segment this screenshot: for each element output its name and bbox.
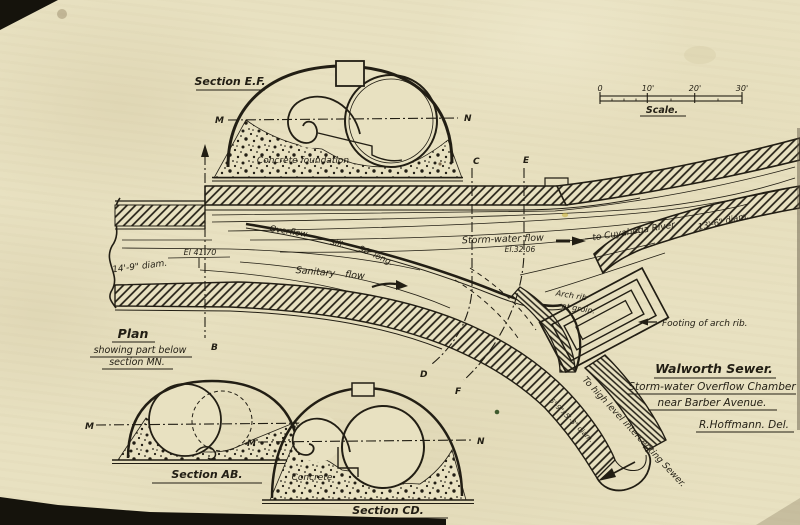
left-diameter: 14'-9" diam. (112, 259, 168, 276)
arch-rib-label-1: Arch rib (554, 288, 587, 302)
dark-speck (438, 162, 441, 165)
ab-marker-m: M (85, 422, 94, 432)
section-ef-drawing: M N Concrete foundation Section E.F. (194, 61, 472, 181)
section-cd-title: Section CD. (352, 504, 424, 517)
cd-concrete-label: Concrete (292, 473, 333, 483)
sill-length-label: 90' long. (357, 244, 395, 268)
scanned-drawing-page: Overflow sill. 90' long. Sanitary flow S… (0, 0, 800, 525)
plan-title: Plan (118, 326, 149, 341)
section-ab-title: Section AB. (171, 468, 242, 481)
storm-elevation: El.32.06 (505, 245, 536, 254)
ef-foundation-label: Concrete foundation (257, 156, 349, 166)
letter-d: D (420, 370, 428, 380)
cd-marker-m: M (247, 439, 256, 449)
scale-bar: 0 10' 20' 30' Scale. (597, 84, 748, 116)
cd-keystone (352, 383, 374, 396)
cd-marker-n: N (477, 437, 485, 447)
letter-e: E (523, 156, 530, 166)
engineering-drawing: Overflow sill. 90' long. Sanitary flow S… (0, 0, 800, 525)
section-ef-title: Section E.F. (194, 75, 265, 88)
footing-label: Footing of arch rib. (662, 319, 748, 329)
title-line-1: Walworth Sewer. (655, 361, 773, 376)
left-elevation: El 41.70 (184, 248, 217, 257)
paper-stain (684, 46, 716, 64)
sanitary-flow-label: Sanitary flow (295, 265, 365, 282)
scale-tick-30: 30' (736, 84, 748, 93)
section-a-arrow (201, 144, 209, 157)
plan-subtitle-1: showing part below (94, 345, 187, 356)
letter-c: C (473, 157, 480, 167)
plan-subtitle-2: section MN. (109, 357, 165, 368)
green-speck (495, 410, 500, 415)
scale-label: Scale. (646, 105, 678, 116)
ef-keystone (336, 61, 364, 86)
top-wall (205, 186, 567, 205)
letter-f: F (455, 387, 462, 397)
title-line-3: near Barber Avenue. (658, 397, 767, 409)
overflow-label: Overflow (269, 224, 308, 240)
title-line-2: Storm-water Overflow Chamber (628, 381, 796, 393)
scale-tick-0: 0 (597, 84, 602, 93)
ef-marker-m: M (215, 116, 224, 126)
scale-tick-10: 10' (642, 84, 654, 93)
yellow-speck (562, 213, 568, 217)
ef-marker-n: N (464, 114, 472, 124)
drafter-credit: R.Hoffmann. Del. (699, 419, 789, 431)
corner-shadow-bottom-right (756, 498, 800, 525)
letter-b: B (211, 343, 218, 353)
scale-tick-20: 20' (689, 84, 701, 93)
corner-shadow-top-left (0, 0, 58, 30)
